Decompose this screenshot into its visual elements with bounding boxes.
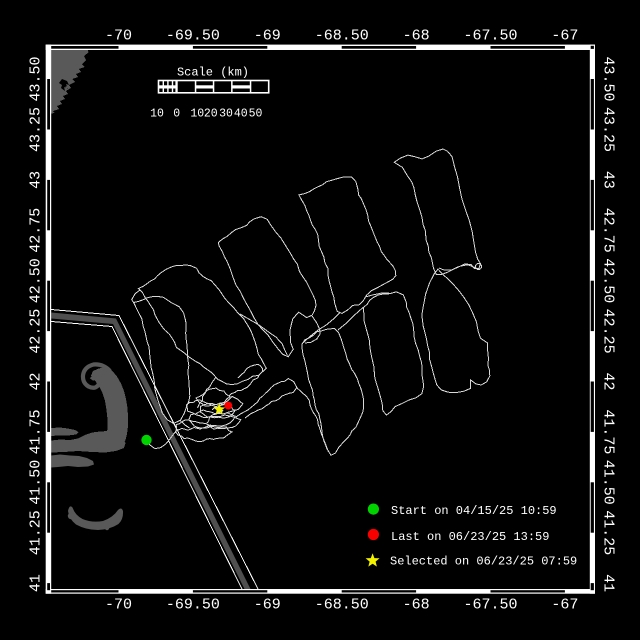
svg-text:43.25: 43.25 [28,107,45,152]
svg-text:-69.50: -69.50 [166,28,220,45]
svg-text:41.75: 41.75 [600,409,617,454]
svg-text:41.50: 41.50 [28,460,45,505]
svg-text:42.25: 42.25 [600,309,617,354]
svg-text:-70: -70 [105,597,132,614]
svg-text:43.50: 43.50 [600,56,617,101]
svg-text:-68.50: -68.50 [315,597,369,614]
svg-text:Scale (km): Scale (km) [177,66,249,80]
svg-text:43: 43 [600,171,617,189]
svg-text:-67: -67 [551,28,578,45]
svg-text:43.50: 43.50 [28,56,45,101]
svg-text:42: 42 [600,372,617,390]
svg-text:40: 40 [234,108,248,121]
svg-text:42.50: 42.50 [600,258,617,303]
svg-text:50: 50 [249,108,263,121]
svg-text:10: 10 [150,108,164,121]
svg-text:-68: -68 [403,597,430,614]
svg-text:0: 0 [173,108,180,121]
svg-text:20: 20 [204,108,218,121]
svg-text:41.50: 41.50 [600,460,617,505]
svg-text:41.25: 41.25 [28,510,45,555]
svg-text:Selected on 06/23/25 07:59: Selected on 06/23/25 07:59 [390,555,577,569]
svg-text:42.25: 42.25 [28,309,45,354]
svg-text:-69: -69 [254,28,281,45]
svg-text:10: 10 [190,108,204,121]
svg-text:30: 30 [219,108,233,121]
svg-text:-68: -68 [403,28,430,45]
svg-text:42: 42 [28,372,45,390]
svg-text:42.50: 42.50 [28,258,45,303]
svg-text:41.25: 41.25 [600,510,617,555]
svg-text:-67: -67 [551,597,578,614]
svg-text:43: 43 [28,171,45,189]
svg-text:-67.50: -67.50 [463,597,517,614]
svg-text:42.75: 42.75 [600,208,617,253]
svg-text:42.75: 42.75 [28,208,45,253]
svg-text:-69: -69 [254,597,281,614]
svg-text:41: 41 [600,574,617,592]
svg-text:Last on 06/23/25 13:59: Last on 06/23/25 13:59 [391,530,549,544]
svg-text:41.75: 41.75 [28,409,45,454]
svg-text:43.25: 43.25 [600,107,617,152]
svg-text:-67.50: -67.50 [463,28,517,45]
svg-text:41: 41 [28,574,45,592]
svg-text:-69.50: -69.50 [166,597,220,614]
svg-text:Start on 04/15/25 10:59: Start on 04/15/25 10:59 [391,504,557,518]
svg-text:-68.50: -68.50 [315,28,369,45]
svg-text:-70: -70 [105,28,132,45]
